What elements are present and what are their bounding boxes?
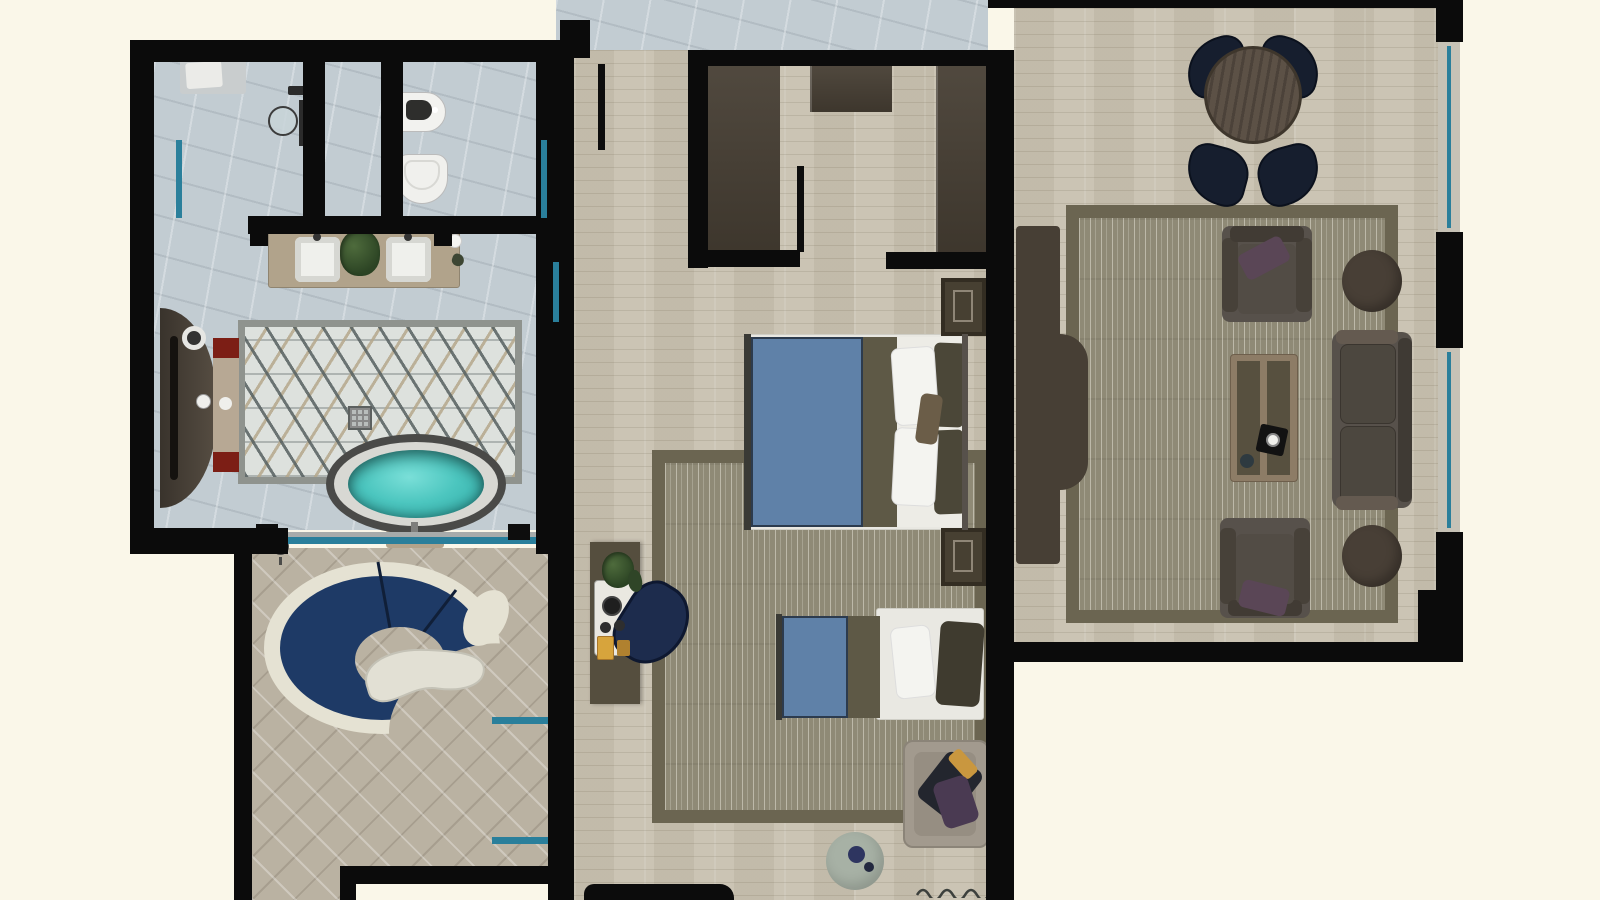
wall-bedroom-living-divider: [986, 50, 1014, 900]
coffee-table-cup: [1266, 433, 1280, 447]
vanity-stool-band-top: [213, 338, 239, 358]
lounge-door-glass-upper: [492, 717, 554, 724]
door-stop-right: [434, 234, 452, 246]
door-glass-bathroom-lower: [553, 262, 559, 322]
cup-2: [614, 620, 625, 631]
living-sofa-arm-top: [1336, 330, 1398, 344]
vanity-plant[interactable]: [340, 230, 380, 276]
shower-head[interactable]: [268, 106, 298, 136]
wardrobe-left[interactable]: [706, 62, 780, 252]
living-sofa-arm-bottom: [1336, 496, 1398, 510]
bed-single-pillow-dark: [935, 621, 985, 708]
wall-bathroom-top: [130, 40, 562, 62]
living-sofa-back: [1398, 338, 1412, 502]
living-sofa-cushion-bottom: [1340, 426, 1396, 506]
wall-lounge-bottom-opening: [356, 884, 548, 900]
wall-living-right-top: [1436, 0, 1463, 42]
makeup-vanity-lamp: [182, 326, 206, 350]
wall-bathroom-bottom-left: [130, 528, 288, 554]
bed-double-headboard: [962, 334, 968, 530]
makeup-vanity-knob: [196, 394, 211, 409]
living-armchair-bottom-arm-right: [1294, 528, 1310, 604]
tv-console-bump: [1046, 334, 1088, 490]
snack-box-1: [597, 636, 614, 660]
pouf-object-small: [864, 862, 874, 872]
kidney-coffee-table[interactable]: [349, 633, 495, 715]
door-stop-left: [250, 234, 268, 246]
lounge-door-glass-lower: [492, 837, 554, 844]
towel[interactable]: [185, 61, 223, 89]
wall-bathroom-left: [130, 40, 154, 554]
bed-single-duvet: [782, 616, 848, 718]
decor-squiggle: [914, 884, 992, 898]
sink-right-faucet: [404, 233, 412, 241]
wall-lounge-right: [548, 554, 574, 900]
living-armchair-bottom-arm-left: [1220, 528, 1236, 604]
glass-wall-bathroom: [278, 537, 536, 544]
wall-entry-stub: [560, 20, 590, 58]
pouf-object-large: [848, 846, 865, 863]
cup-1: [600, 622, 611, 633]
sink-left-faucet: [313, 233, 321, 241]
bed-double-duvet: [751, 337, 863, 527]
closet-door-leaf[interactable]: [797, 166, 804, 252]
hallway-door-leaf[interactable]: [598, 64, 605, 150]
glass-door-bracket-right: [508, 524, 530, 540]
wall-shower-partition-right: [381, 62, 403, 222]
living-armchair-top-arm-right: [1296, 238, 1312, 312]
closet-dresser[interactable]: [810, 64, 892, 112]
wall-closet-top: [688, 50, 1014, 66]
living-armchair-top-arm-left: [1222, 238, 1238, 312]
floor-plan: [0, 0, 1600, 900]
shower-glass-right: [541, 140, 547, 218]
wardrobe-right[interactable]: [936, 62, 986, 252]
side-table-bottom[interactable]: [1342, 525, 1402, 587]
window-glass-lower: [1447, 352, 1451, 528]
window-glass-upper: [1447, 46, 1451, 228]
snack-box-2: [617, 640, 630, 656]
floor-drain-stem: [279, 557, 282, 565]
side-table-top[interactable]: [1342, 250, 1402, 312]
vanity-stool-band-bottom: [213, 452, 239, 472]
wall-closet-bottom-right: [886, 252, 986, 269]
sink-left[interactable]: [295, 237, 340, 282]
bidet-drain: [432, 107, 438, 113]
floor-drain-grate: [348, 406, 372, 430]
bed-double-footboard: [744, 334, 751, 530]
sink-right[interactable]: [386, 237, 431, 282]
wall-living-right-step: [1418, 590, 1463, 662]
makeup-vanity-slot: [170, 336, 178, 480]
living-sofa-cushion-top: [1340, 344, 1396, 424]
nightstand-middle-inlay: [953, 540, 973, 572]
coffee-table-bowl: [1240, 454, 1254, 468]
wall-living-bottom: [1012, 642, 1463, 662]
kettle[interactable]: [602, 596, 622, 616]
coffee-table-panel-right: [1267, 361, 1290, 475]
wall-living-right-pier: [1436, 232, 1463, 348]
wall-closet-bottom-left: [700, 250, 800, 267]
wall-closet-left: [688, 50, 708, 268]
dining-table[interactable]: [1204, 46, 1302, 144]
bench[interactable]: [584, 884, 734, 900]
vanity-stool-dot: [219, 397, 232, 410]
bidet-basin: [406, 100, 432, 120]
shower-glass-left: [176, 140, 182, 218]
wall-lounge-left: [234, 554, 252, 900]
bed-single-band: [848, 616, 880, 718]
nightstand-top-inlay: [953, 290, 973, 322]
entry-corridor-floor: [556, 0, 988, 50]
wall-living-top: [988, 0, 1438, 8]
bed-single-pillow-white: [889, 624, 936, 700]
wall-shower-partition-left: [303, 62, 325, 222]
wall-bathroom-horizontal: [248, 216, 538, 234]
bathtub-water: [348, 450, 484, 518]
